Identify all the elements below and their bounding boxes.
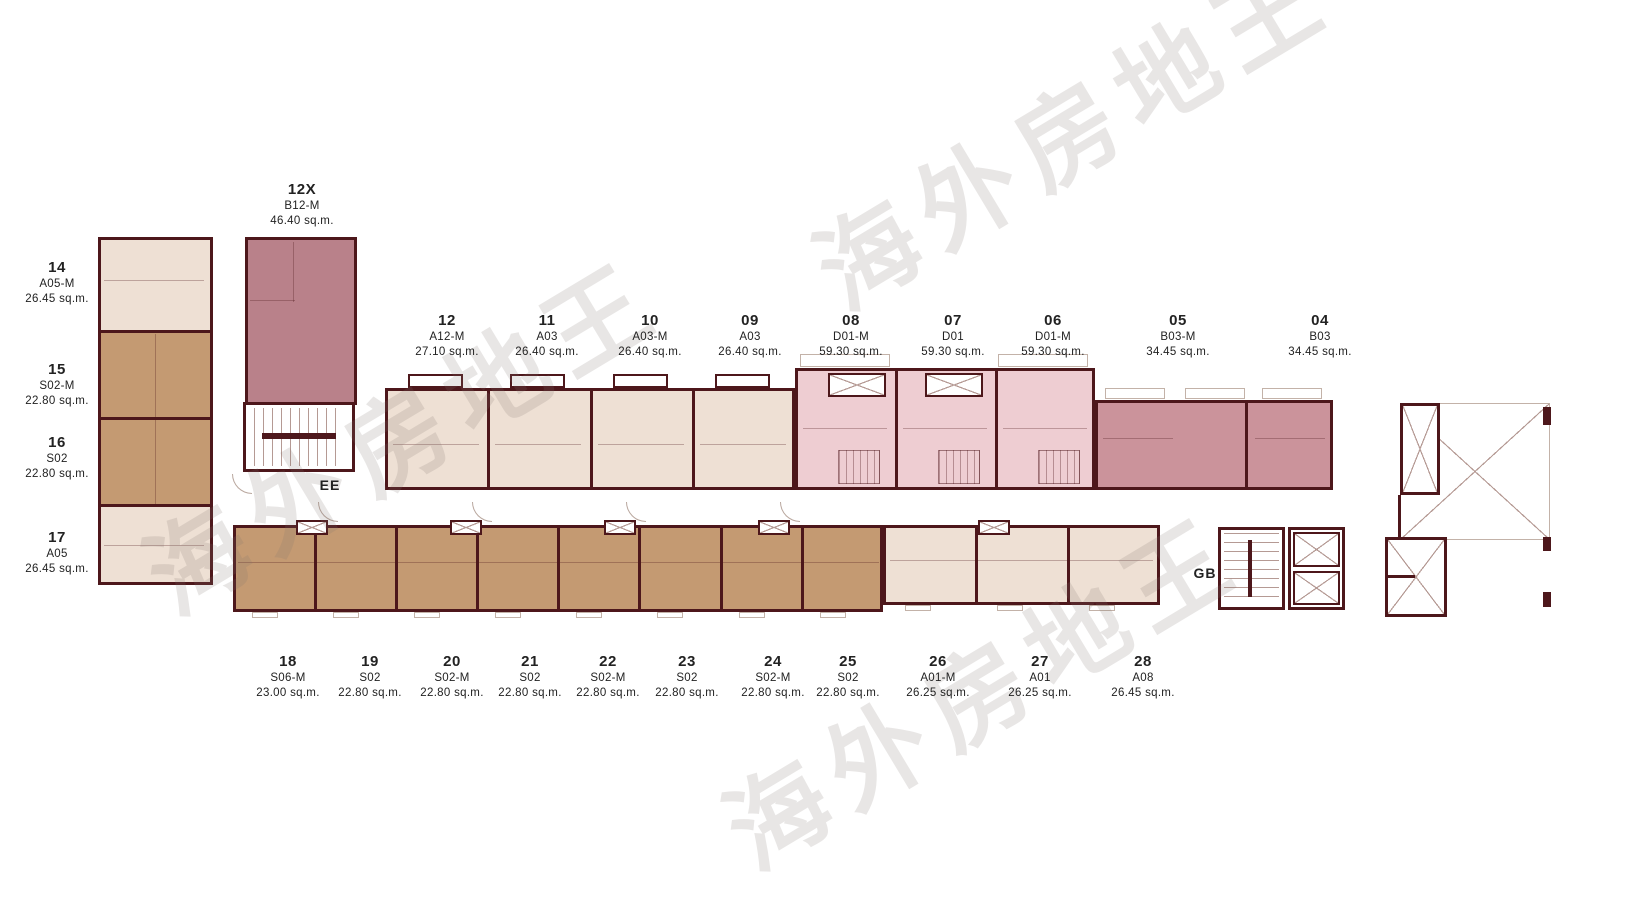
unit-area: 22.80 sq.m. [637,686,737,700]
unit-14-block [98,237,213,333]
unit-label-09: 09 A03 26.40 sq.m. [700,311,800,359]
unit-type: A05-M [7,277,107,292]
unit-type: D01-M [1003,330,1103,345]
facade-tick [820,612,846,618]
unit-label-10: 10 A03-M 26.40 sq.m. [600,311,700,359]
unit-number: 26 [888,652,988,671]
room-line [890,560,1153,561]
door-arc [472,502,492,522]
unit-type: B03 [1270,330,1370,345]
stair-handrail [262,433,336,439]
unit-number: 15 [7,360,107,379]
unit-type: S02-M [7,379,107,394]
balcony-rail [1105,388,1165,399]
unit-divider [692,388,695,490]
unit-number: 25 [798,652,898,671]
facade-tick [657,612,683,618]
unit-area: 26.40 sq.m. [497,345,597,359]
wall-stub [1398,495,1401,537]
wall-stub [1543,592,1551,607]
unit-label-16: 16 S02 22.80 sq.m. [7,433,107,481]
unit-type: D01 [903,330,1003,345]
facade-tick [414,612,440,618]
unit-divider [1245,400,1248,490]
unit-label-14: 14 A05-M 26.45 sq.m. [7,258,107,306]
unit-label-11: 11 A03 26.40 sq.m. [497,311,597,359]
unit-area: 22.80 sq.m. [7,394,107,408]
unit-divider [314,525,317,612]
ac-ledge [828,373,886,397]
unit-number: 04 [1270,311,1370,330]
unit-divider [975,525,978,605]
duplex-stair [838,450,880,484]
room-line [598,444,684,445]
unit-area: 22.80 sq.m. [7,467,107,481]
unit-number: 27 [990,652,1090,671]
balcony-ledge [613,374,668,388]
unit-area: 59.30 sq.m. [1003,345,1103,359]
room-line [495,444,581,445]
facade-tick [252,612,278,618]
unit-number: 17 [7,528,107,547]
unit-label-27: 27 A01 26.25 sq.m. [990,652,1090,700]
room-line [293,242,294,302]
unit-type: A12-M [397,330,497,345]
unit-type: A01-M [888,671,988,686]
wall-stub [1543,537,1551,551]
room-line [1255,438,1325,439]
elevator-shaft [1293,532,1340,567]
unit-label-26: 26 A01-M 26.25 sq.m. [888,652,988,700]
room-line [250,300,295,301]
unit-type: A03-M [600,330,700,345]
room-line [700,444,786,445]
room-line [393,444,479,445]
unit-type: B12-M [252,199,352,214]
unit-label-28: 28 A08 26.45 sq.m. [1093,652,1193,700]
room-line [155,334,156,504]
floorplan-canvas: 海外房地王 海外房地王 海外房地王 EE [0,0,1643,897]
unit-divider [995,368,998,490]
ac-ledge [604,520,636,535]
facade-tick [495,612,521,618]
unit-area: 26.25 sq.m. [990,686,1090,700]
elevator-shaft [1293,571,1340,605]
unit-number: 07 [903,311,1003,330]
unit-label-08: 08 D01-M 59.30 sq.m. [801,311,901,359]
unit-number: 23 [637,652,737,671]
unit-label-05: 05 B03-M 34.45 sq.m. [1128,311,1228,359]
ee-label: EE [280,477,380,493]
room-line [104,545,204,546]
unit-label-06: 06 D01-M 59.30 sq.m. [1003,311,1103,359]
bottom-beige-strip [883,525,1160,605]
unit-type: D01-M [801,330,901,345]
unit-area: 26.45 sq.m. [7,562,107,576]
unit-label-07: 07 D01 59.30 sq.m. [903,311,1003,359]
unit-divider [720,525,723,612]
unit-divider [590,388,593,490]
room-line [803,428,887,429]
facade-tick [576,612,602,618]
unit-number: 28 [1093,652,1193,671]
unit-number: 12 [397,311,497,330]
unit-12x-block [245,237,357,405]
facade-tick [739,612,765,618]
wall-stub [1543,407,1551,425]
unit-type: A01 [990,671,1090,686]
unit-area: 46.40 sq.m. [252,214,352,228]
ac-ledge [296,520,328,535]
unit-number: 10 [600,311,700,330]
unit-number: 16 [7,433,107,452]
unit-type: A05 [7,547,107,562]
unit-area: 22.80 sq.m. [798,686,898,700]
unit-number: 08 [801,311,901,330]
unit-area: 34.45 sq.m. [1270,345,1370,359]
watermark: 海外房地王 [784,0,1356,337]
unit-type: A08 [1093,671,1193,686]
unit-divider [557,525,560,612]
unit-area: 26.25 sq.m. [888,686,988,700]
door-arc [780,502,800,522]
unit-type: S02 [798,671,898,686]
door-arc [318,502,338,522]
unit-number: 09 [700,311,800,330]
unit-divider [895,368,898,490]
ac-ledge [925,373,983,397]
ac-ledge [450,520,482,535]
rose-strip [1095,400,1333,490]
unit-label-23: 23 S02 22.80 sq.m. [637,652,737,700]
facade-tick [333,612,359,618]
room-line [1103,438,1173,439]
unit-label-25: 25 S02 22.80 sq.m. [798,652,898,700]
unit-label-12: 12 A12-M 27.10 sq.m. [397,311,497,359]
door-arc [232,474,252,494]
service-shaft [1400,403,1440,495]
unit-divider [1067,525,1070,605]
unit-area: 59.30 sq.m. [801,345,901,359]
unit-number: 06 [1003,311,1103,330]
unit-type: B03-M [1128,330,1228,345]
facade-tick [997,605,1023,611]
unit-divider [638,525,641,612]
unit-type: A03 [497,330,597,345]
unit-type: S02 [637,671,737,686]
balcony-ledge [408,374,463,388]
facade-tick [1089,605,1115,611]
gb-label: GB [1155,565,1255,581]
room-line [1003,428,1087,429]
unit-number: 12X [252,180,352,199]
balcony-ledge [715,374,770,388]
unit-number: 14 [7,258,107,277]
room-line [104,280,204,281]
duplex-stair [938,450,980,484]
balcony-rail [1262,388,1322,399]
unit-number: 11 [497,311,597,330]
unit-divider [395,525,398,612]
unit-type: S02 [7,452,107,467]
door-arc [626,502,646,522]
room-line [903,428,987,429]
balcony-ledge [510,374,565,388]
balcony-rail [1185,388,1245,399]
unit-divider [487,388,490,490]
unit-area: 34.45 sq.m. [1128,345,1228,359]
unit-divider [476,525,479,612]
unit-area: 26.45 sq.m. [1093,686,1193,700]
unit-label-15: 15 S02-M 22.80 sq.m. [7,360,107,408]
wall-stub [1385,575,1415,578]
facade-tick [905,605,931,611]
unit-area: 59.30 sq.m. [903,345,1003,359]
unit-label-12x: 12X B12-M 46.40 sq.m. [252,180,352,228]
unit-divider [801,525,804,612]
unit-number: 05 [1128,311,1228,330]
ac-ledge [978,520,1010,535]
unit-area: 27.10 sq.m. [397,345,497,359]
unit-area: 26.45 sq.m. [7,292,107,306]
unit-area: 26.40 sq.m. [600,345,700,359]
room-line [238,562,879,563]
unit-area: 26.40 sq.m. [700,345,800,359]
ac-ledge [758,520,790,535]
unit-type: A03 [700,330,800,345]
unit-label-04: 04 B03 34.45 sq.m. [1270,311,1370,359]
unit-label-17: 17 A05 26.45 sq.m. [7,528,107,576]
duplex-stair [1038,450,1080,484]
